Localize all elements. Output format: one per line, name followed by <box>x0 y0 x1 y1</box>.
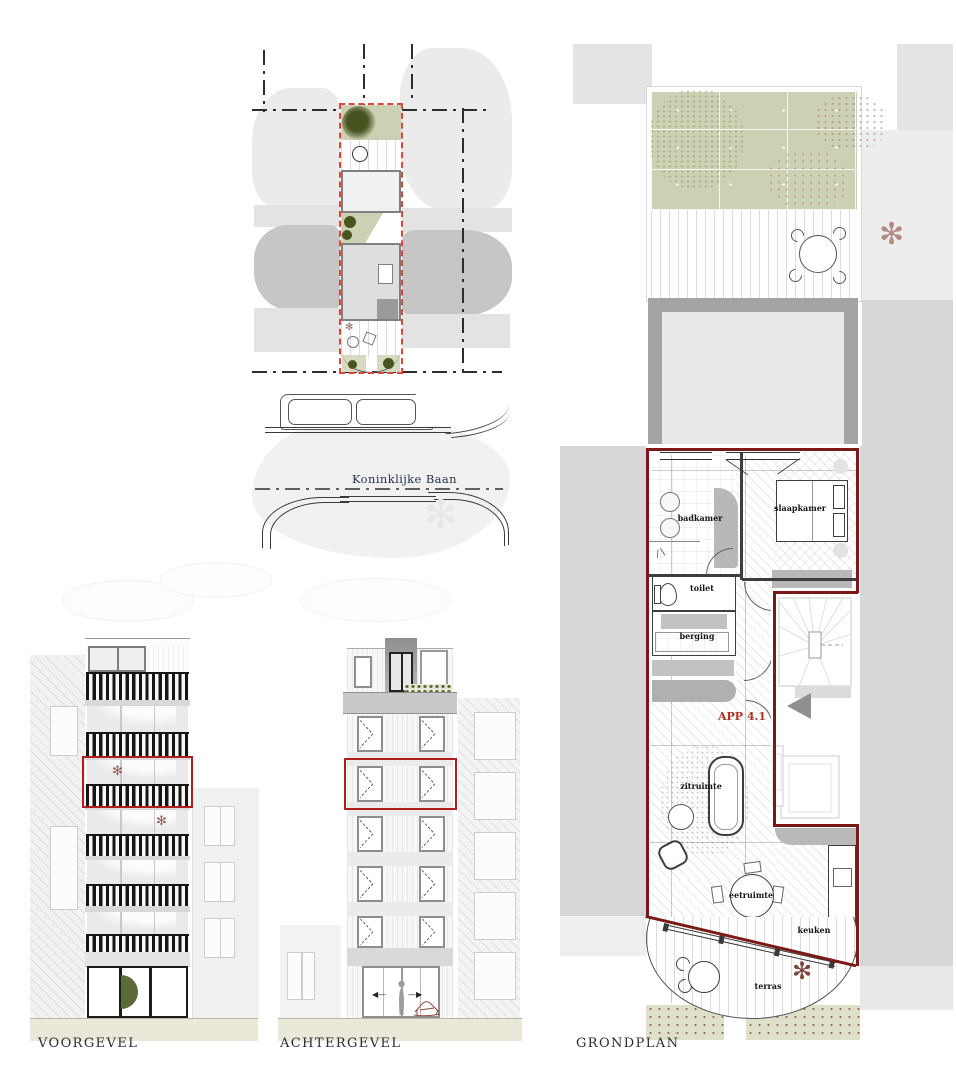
room-label-slaapkamer: slaapkamer <box>774 504 826 512</box>
achtergevel-elevation: ◀— —▶ <box>0 600 540 1060</box>
unit-outline <box>773 824 858 827</box>
neighbour-building <box>402 208 512 232</box>
window <box>357 716 383 752</box>
room-label-eetruimte: eetruimte <box>729 891 773 899</box>
spandrel-band <box>347 902 453 916</box>
caption-grondplan: GRONDPLAN <box>576 1036 679 1051</box>
context-block <box>897 44 953 130</box>
neighbour-window <box>474 772 516 820</box>
dimension-line <box>745 455 746 917</box>
balcony-slab <box>343 692 457 714</box>
spandrel-band <box>347 852 453 866</box>
window <box>419 716 445 752</box>
terrace-zone: ✻ terras <box>646 917 860 1040</box>
road-edge <box>265 427 451 433</box>
hall-cabinet <box>652 680 736 702</box>
window <box>357 866 383 902</box>
room-label-toilet: toilet <box>690 584 714 592</box>
garden-table <box>799 235 837 273</box>
dining-chair <box>743 861 761 874</box>
sink <box>660 492 680 512</box>
road-edge <box>340 496 436 502</box>
unit-outline <box>856 448 859 593</box>
pillow <box>833 485 845 509</box>
terrace-table <box>688 961 720 993</box>
sofa <box>708 756 744 836</box>
car-window <box>288 399 352 425</box>
interior-wall <box>742 578 858 581</box>
floor-slab <box>347 948 453 966</box>
context-block <box>573 44 652 104</box>
red-highlight-box <box>344 758 457 810</box>
neighbour-building <box>254 308 340 352</box>
neighbour-window <box>474 952 516 1000</box>
window <box>357 816 383 852</box>
courtyard-interior <box>662 312 844 446</box>
caption-achtergevel: ACHTERGEVEL <box>280 1036 401 1051</box>
street-name-label: Koninklijke Baan <box>352 472 457 486</box>
parcel-boundary-line <box>263 50 265 112</box>
hall-cabinet <box>652 660 734 676</box>
plant-speckle <box>767 151 849 209</box>
slide-arrow-left-icon: ◀— <box>372 990 386 999</box>
caption-voorgevel: VOORGEVEL <box>38 1036 138 1051</box>
ground-doors: ◀— —▶ <box>362 966 440 1018</box>
neighbour-building <box>402 314 510 348</box>
neighbour-building <box>252 88 340 208</box>
parcel-boundary-line <box>411 44 413 104</box>
lounge-chair-icon <box>412 998 442 1018</box>
storage-cabinet <box>661 614 727 629</box>
neighbour-building <box>400 48 512 210</box>
person-icon <box>396 980 407 1016</box>
window <box>357 916 383 948</box>
context-block <box>862 130 953 300</box>
neighbour-building-dark <box>254 225 340 311</box>
room-label-keuken: keuken <box>798 926 831 934</box>
pillow <box>833 513 845 537</box>
room-label-badkamer: badkamer <box>678 514 723 522</box>
unit-outline <box>773 591 776 827</box>
context-block <box>560 916 646 956</box>
stair-core <box>771 588 859 828</box>
tree-sketch-icon <box>649 89 744 189</box>
unit-outline <box>773 591 858 594</box>
site-plan: ✻ Koninklijke Baan ✻ <box>0 0 540 600</box>
neighbour-window <box>474 712 516 760</box>
dimension-line <box>652 470 856 471</box>
kitchen-sink <box>833 868 852 887</box>
neighbour-window <box>474 892 516 940</box>
cloud-sketch <box>160 562 272 598</box>
core-wall-band <box>775 825 858 845</box>
snowflake-plant-icon: ✻ <box>424 492 458 538</box>
context-block <box>860 966 953 1010</box>
parcel-boundary-line <box>363 44 365 106</box>
window <box>419 816 445 852</box>
side-table <box>668 804 694 830</box>
unit-outline <box>646 448 858 451</box>
grondplan-floorplan: ✻ ∕∖ <box>540 0 956 1069</box>
neighbour-building <box>254 205 340 227</box>
parcel-outline-red-dashed <box>339 103 403 374</box>
architectural-sheet: ✻ Koninklijke Baan ✻ <box>0 0 956 1069</box>
room-label-terras: terras <box>755 982 782 990</box>
room-toilet <box>652 576 736 611</box>
street-centerline <box>255 488 503 490</box>
plant-speckle <box>815 95 887 151</box>
window <box>419 916 445 948</box>
context-block <box>862 300 953 446</box>
dining-chair <box>711 885 724 903</box>
neighbour-window <box>474 832 516 880</box>
neighbour-building-dark <box>402 230 512 316</box>
context-block <box>560 446 646 916</box>
plan-window <box>660 452 712 460</box>
neighbour-window <box>287 952 315 1000</box>
window <box>419 866 445 902</box>
parcel-boundary-line <box>462 108 464 372</box>
car-window <box>356 399 416 425</box>
plan-window <box>726 452 800 460</box>
toilet-tank <box>654 585 661 604</box>
unit-outline <box>856 824 859 966</box>
unit-outline <box>646 448 649 918</box>
interior-wall <box>740 452 743 580</box>
room-label-berging: berging <box>680 632 715 640</box>
room-label-zitruimte: zitruimte <box>680 782 722 790</box>
nightstand <box>833 459 848 474</box>
apartment-label: APP 4.1 <box>718 710 766 723</box>
garden-parcel: ✻ <box>646 86 862 302</box>
wall-line <box>648 541 700 542</box>
plant-sketch-icon: ✻ <box>879 217 904 252</box>
context-block <box>860 446 953 966</box>
nightstand <box>833 543 848 558</box>
toilet-fixture <box>659 583 677 606</box>
window <box>354 656 372 688</box>
